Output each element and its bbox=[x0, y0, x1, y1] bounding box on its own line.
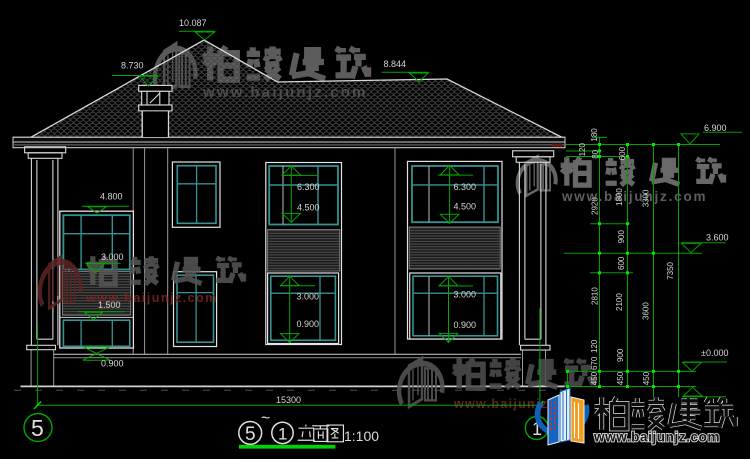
svg-text:180: 180 bbox=[590, 128, 599, 142]
svg-text:3.000: 3.000 bbox=[454, 290, 477, 300]
svg-text:0.900: 0.900 bbox=[454, 320, 477, 330]
svg-text:80: 80 bbox=[591, 149, 600, 158]
svg-text:15300: 15300 bbox=[276, 395, 301, 405]
svg-text:2810: 2810 bbox=[590, 287, 599, 305]
svg-text:670: 670 bbox=[590, 356, 599, 370]
svg-text:3.000: 3.000 bbox=[297, 292, 320, 302]
svg-text:7350: 7350 bbox=[666, 261, 675, 279]
svg-text:1: 1 bbox=[278, 425, 287, 444]
svg-text:900: 900 bbox=[617, 230, 626, 244]
svg-text:120: 120 bbox=[590, 339, 599, 353]
svg-text:6.900: 6.900 bbox=[704, 123, 727, 133]
svg-text:±0.000: ±0.000 bbox=[701, 348, 728, 358]
svg-text:8.844: 8.844 bbox=[384, 59, 407, 69]
svg-text:2100: 2100 bbox=[615, 293, 624, 311]
svg-text:4.500: 4.500 bbox=[297, 203, 320, 213]
svg-text:600: 600 bbox=[617, 256, 626, 270]
svg-text:0.900: 0.900 bbox=[101, 359, 124, 369]
svg-text:3.600: 3.600 bbox=[706, 233, 729, 243]
svg-text:10.087: 10.087 bbox=[179, 18, 207, 28]
svg-text:~: ~ bbox=[261, 410, 270, 427]
svg-text:600: 600 bbox=[618, 146, 627, 160]
svg-text:4.800: 4.800 bbox=[100, 192, 123, 202]
svg-text:5: 5 bbox=[31, 415, 44, 441]
svg-text:450: 450 bbox=[590, 371, 599, 385]
svg-text:6.300: 6.300 bbox=[454, 182, 477, 192]
svg-text:1800: 1800 bbox=[615, 188, 624, 206]
svg-text:450: 450 bbox=[642, 371, 651, 385]
svg-text:1.500: 1.500 bbox=[98, 300, 121, 310]
svg-text:www.baijunjz.com: www.baijunjz.com bbox=[593, 430, 720, 445]
svg-text:3600: 3600 bbox=[641, 302, 650, 320]
svg-text:900: 900 bbox=[616, 348, 625, 362]
svg-text:6.300: 6.300 bbox=[297, 182, 320, 192]
svg-text:1:100: 1:100 bbox=[344, 428, 379, 444]
svg-text:0.900: 0.900 bbox=[297, 319, 320, 329]
svg-text:5: 5 bbox=[245, 424, 256, 445]
svg-text:3.000: 3.000 bbox=[101, 252, 124, 262]
svg-text:120: 120 bbox=[578, 143, 587, 157]
svg-text:450: 450 bbox=[616, 371, 625, 385]
svg-text:3300: 3300 bbox=[641, 189, 650, 207]
svg-text:8.730: 8.730 bbox=[121, 61, 144, 71]
svg-text:www.baijunjz.com: www.baijunjz.com bbox=[561, 189, 707, 204]
svg-text:4.500: 4.500 bbox=[454, 202, 477, 212]
svg-text:2920: 2920 bbox=[590, 197, 599, 215]
